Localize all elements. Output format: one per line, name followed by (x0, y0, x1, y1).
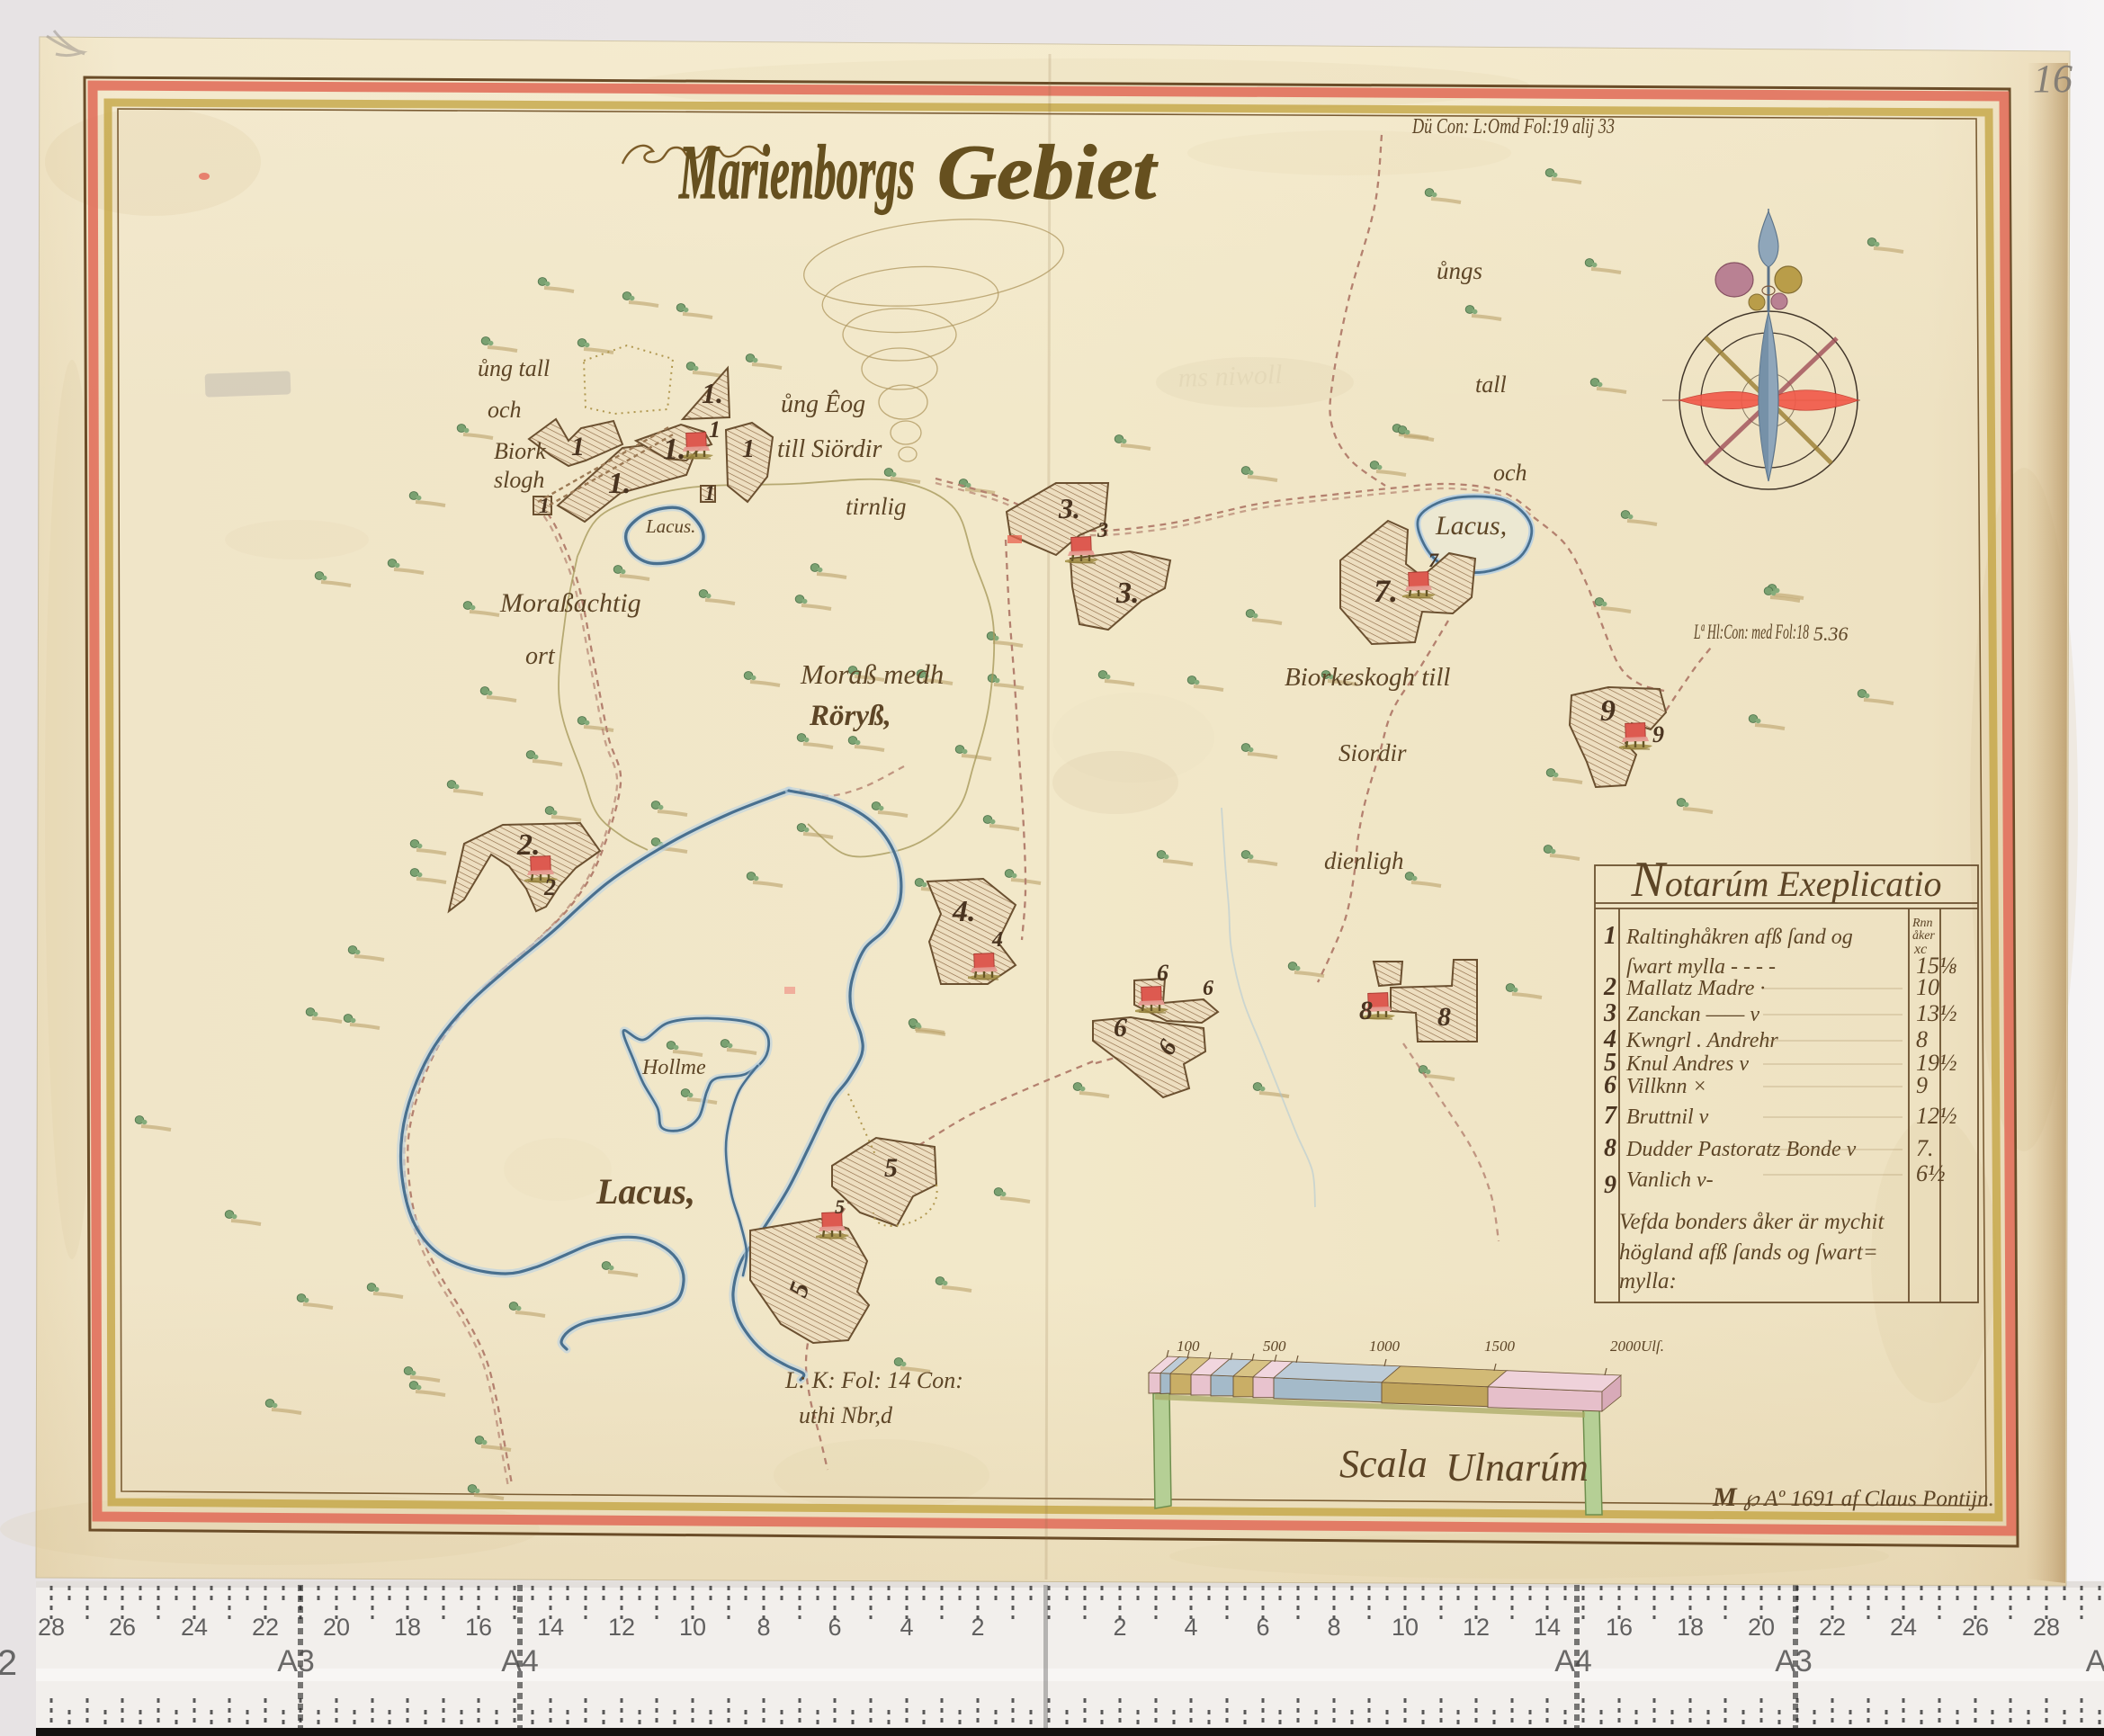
svg-text:Bruttnil v: Bruttnil v (1626, 1105, 1709, 1129)
svg-text:1.: 1. (608, 467, 631, 500)
svg-text:26: 26 (1962, 1614, 1989, 1641)
svg-text:500: 500 (1263, 1338, 1286, 1355)
svg-text:3: 3 (1097, 519, 1108, 542)
svg-text:L: K: Fol: 14 Con:: L: K: Fol: 14 Con: (784, 1367, 963, 1393)
svg-text:10: 10 (679, 1614, 706, 1641)
svg-text:6: 6 (1604, 1071, 1616, 1099)
svg-text:Vanlich v-: Vanlich v- (1626, 1168, 1714, 1192)
svg-text:1: 1 (704, 482, 715, 506)
svg-text:5: 5 (884, 1153, 898, 1183)
svg-text:8: 8 (1604, 1134, 1616, 1162)
svg-text:och: och (1493, 460, 1527, 486)
svg-text:2: 2 (0, 1643, 17, 1683)
svg-text:M: M (1712, 1482, 1738, 1512)
svg-text:10: 10 (1916, 974, 1939, 1000)
svg-text:tall: tall (1475, 371, 1507, 398)
svg-text:4.: 4. (952, 895, 976, 928)
svg-text:1: 1 (571, 432, 585, 461)
svg-text:och: och (488, 397, 522, 423)
svg-text:1: 1 (539, 495, 550, 518)
svg-text:1500: 1500 (1484, 1338, 1516, 1355)
svg-text:Raltinghåkren afß ſand og: Raltinghåkren afß ſand og (1625, 926, 1853, 949)
svg-text:12: 12 (1463, 1614, 1490, 1641)
svg-text:2: 2 (971, 1614, 984, 1641)
svg-text:Biorkeskogh till: Biorkeskogh till (1285, 663, 1450, 692)
svg-text:6: 6 (1256, 1614, 1269, 1641)
svg-text:16: 16 (2033, 57, 2073, 101)
svg-text:12½: 12½ (1916, 1103, 1957, 1129)
svg-text:Lacus.: Lacus. (645, 515, 695, 537)
svg-text:högland afß ſands og ſwart=: högland afß ſands og ſwart= (1619, 1240, 1878, 1265)
svg-text:18: 18 (1677, 1614, 1704, 1641)
svg-text:12: 12 (608, 1614, 635, 1641)
svg-text:Dü Con: L:Omd Fol:19 alij 33: Dü Con: L:Omd Fol:19 alij 33 (1411, 115, 1615, 139)
svg-text:6: 6 (828, 1614, 841, 1641)
svg-text:100: 100 (1177, 1338, 1200, 1355)
svg-text:5.36: 5.36 (1813, 622, 1849, 645)
svg-text:Moraß medh: Moraß medh (800, 658, 944, 690)
svg-text:7: 7 (1428, 549, 1439, 571)
svg-text:Lacus,: Lacus, (1435, 511, 1507, 541)
svg-text:4: 4 (900, 1614, 913, 1641)
svg-text:28: 28 (2033, 1614, 2060, 1641)
svg-text:14: 14 (537, 1614, 564, 1641)
svg-text:Kwngrl . Andrehr: Kwngrl . Andrehr (1625, 1029, 1778, 1052)
svg-text:Scala: Scala (1339, 1442, 1428, 1486)
svg-text:tirnlig: tirnlig (846, 493, 907, 520)
svg-text:Knul Andres v: Knul Andres v (1625, 1052, 1749, 1076)
svg-text:3.: 3. (1115, 577, 1140, 610)
svg-text:ſwart mylla - - -: ſwart mylla - - - - (1626, 955, 1776, 979)
svg-text:slogh: slogh (494, 467, 544, 493)
svg-text:9: 9 (1604, 1171, 1616, 1199)
svg-text:Hollme: Hollme (641, 1056, 706, 1079)
svg-text:A: A (2086, 1644, 2104, 1678)
svg-text:ůngs: ůngs (1437, 257, 1482, 284)
svg-text:16: 16 (465, 1614, 492, 1641)
svg-text:6: 6 (1157, 960, 1168, 986)
svg-text:2.: 2. (516, 828, 541, 862)
svg-text:28: 28 (38, 1614, 65, 1641)
svg-text:1.: 1. (702, 377, 723, 409)
svg-text:A3: A3 (277, 1644, 315, 1678)
svg-text:dienligh: dienligh (1324, 847, 1404, 874)
svg-text:2: 2 (1603, 973, 1616, 1001)
svg-text:ůng Êog: ůng Êog (781, 390, 865, 418)
svg-text:Zanckan —— v: Zanckan —— v (1626, 1003, 1759, 1026)
svg-text:8: 8 (1327, 1614, 1340, 1641)
svg-text:till Siördir: till Siördir (777, 435, 882, 463)
svg-text:5: 5 (835, 1195, 845, 1218)
svg-text:4: 4 (1184, 1614, 1197, 1641)
svg-text:℘ Aº 1691 af Claus Pontijn.: ℘ Aº 1691 af Claus Pontijn. (1743, 1487, 1994, 1511)
svg-text:7.: 7. (1374, 573, 1398, 609)
svg-text:3: 3 (1603, 999, 1616, 1027)
svg-text:9: 9 (1916, 1072, 1928, 1098)
svg-text:2000Ulſ.: 2000Ulſ. (1610, 1338, 1664, 1355)
svg-text:Villknn ×: Villknn × (1626, 1075, 1707, 1098)
svg-text:8: 8 (757, 1614, 770, 1641)
svg-text:Ulnarúm: Ulnarúm (1446, 1445, 1589, 1490)
svg-text:Röryß,: Röryß, (809, 700, 891, 732)
svg-text:Gebiet: Gebiet (937, 129, 1159, 215)
svg-text:14: 14 (1534, 1614, 1561, 1641)
svg-text:Siordir: Siordir (1339, 739, 1407, 766)
svg-text:8: 8 (1437, 1002, 1451, 1032)
svg-text:Biork: Biork (494, 438, 546, 464)
svg-text:uthi Nbr,d: uthi Nbr,d (799, 1402, 893, 1428)
svg-text:2: 2 (543, 874, 556, 900)
svg-text:1.: 1. (663, 433, 686, 466)
svg-text:Marienborgs: Marienborgs (678, 129, 915, 215)
svg-text:mylla:: mylla: (1619, 1269, 1677, 1293)
svg-text:Lª Hl:Con: med Fol:18: Lª Hl:Con: med Fol:18 (1693, 621, 1809, 643)
svg-text:7: 7 (1604, 1102, 1617, 1130)
svg-text:26: 26 (109, 1614, 136, 1641)
svg-text:1: 1 (1604, 922, 1616, 950)
svg-text:8: 8 (1359, 996, 1373, 1025)
svg-text:6½: 6½ (1916, 1160, 1946, 1186)
svg-text:20: 20 (323, 1614, 350, 1641)
svg-text:3.: 3. (1058, 492, 1080, 524)
svg-text:18: 18 (394, 1614, 421, 1641)
svg-text:8: 8 (1916, 1026, 1928, 1052)
svg-text:Mallatz Madre ·: Mallatz Madre · (1625, 977, 1765, 1000)
svg-text:1: 1 (742, 435, 755, 463)
svg-text:16: 16 (1606, 1614, 1633, 1641)
svg-text:22: 22 (252, 1614, 279, 1641)
svg-text:7.: 7. (1916, 1135, 1934, 1161)
svg-text:10: 10 (1392, 1614, 1419, 1641)
svg-text:åker: åker (1912, 929, 1935, 943)
svg-text:9: 9 (1600, 694, 1616, 728)
svg-text:2: 2 (1113, 1614, 1126, 1641)
svg-text:20: 20 (1748, 1614, 1775, 1641)
svg-text:1000: 1000 (1369, 1338, 1401, 1355)
svg-text:1: 1 (709, 416, 721, 443)
svg-text:24: 24 (1890, 1614, 1917, 1641)
svg-text:Lacus,: Lacus, (595, 1171, 695, 1212)
svg-text:9: 9 (1652, 721, 1664, 747)
svg-text:ůng tall: ůng tall (478, 355, 550, 381)
svg-text:Rnn: Rnn (1912, 917, 1933, 930)
svg-text:24: 24 (181, 1614, 208, 1641)
svg-text:ort: ort (525, 642, 556, 670)
svg-text:22: 22 (1819, 1614, 1846, 1641)
svg-text:4: 4 (991, 928, 1003, 952)
svg-text:A4: A4 (1554, 1644, 1592, 1678)
svg-text:Vefda bonders åker är mychit: Vefda bonders åker är mychit (1619, 1210, 1885, 1234)
svg-text:Moraßachtig: Moraßachtig (499, 588, 641, 618)
svg-text:6: 6 (1114, 1013, 1127, 1042)
svg-text:13½: 13½ (1916, 1000, 1957, 1026)
svg-text:6: 6 (1203, 977, 1213, 1000)
